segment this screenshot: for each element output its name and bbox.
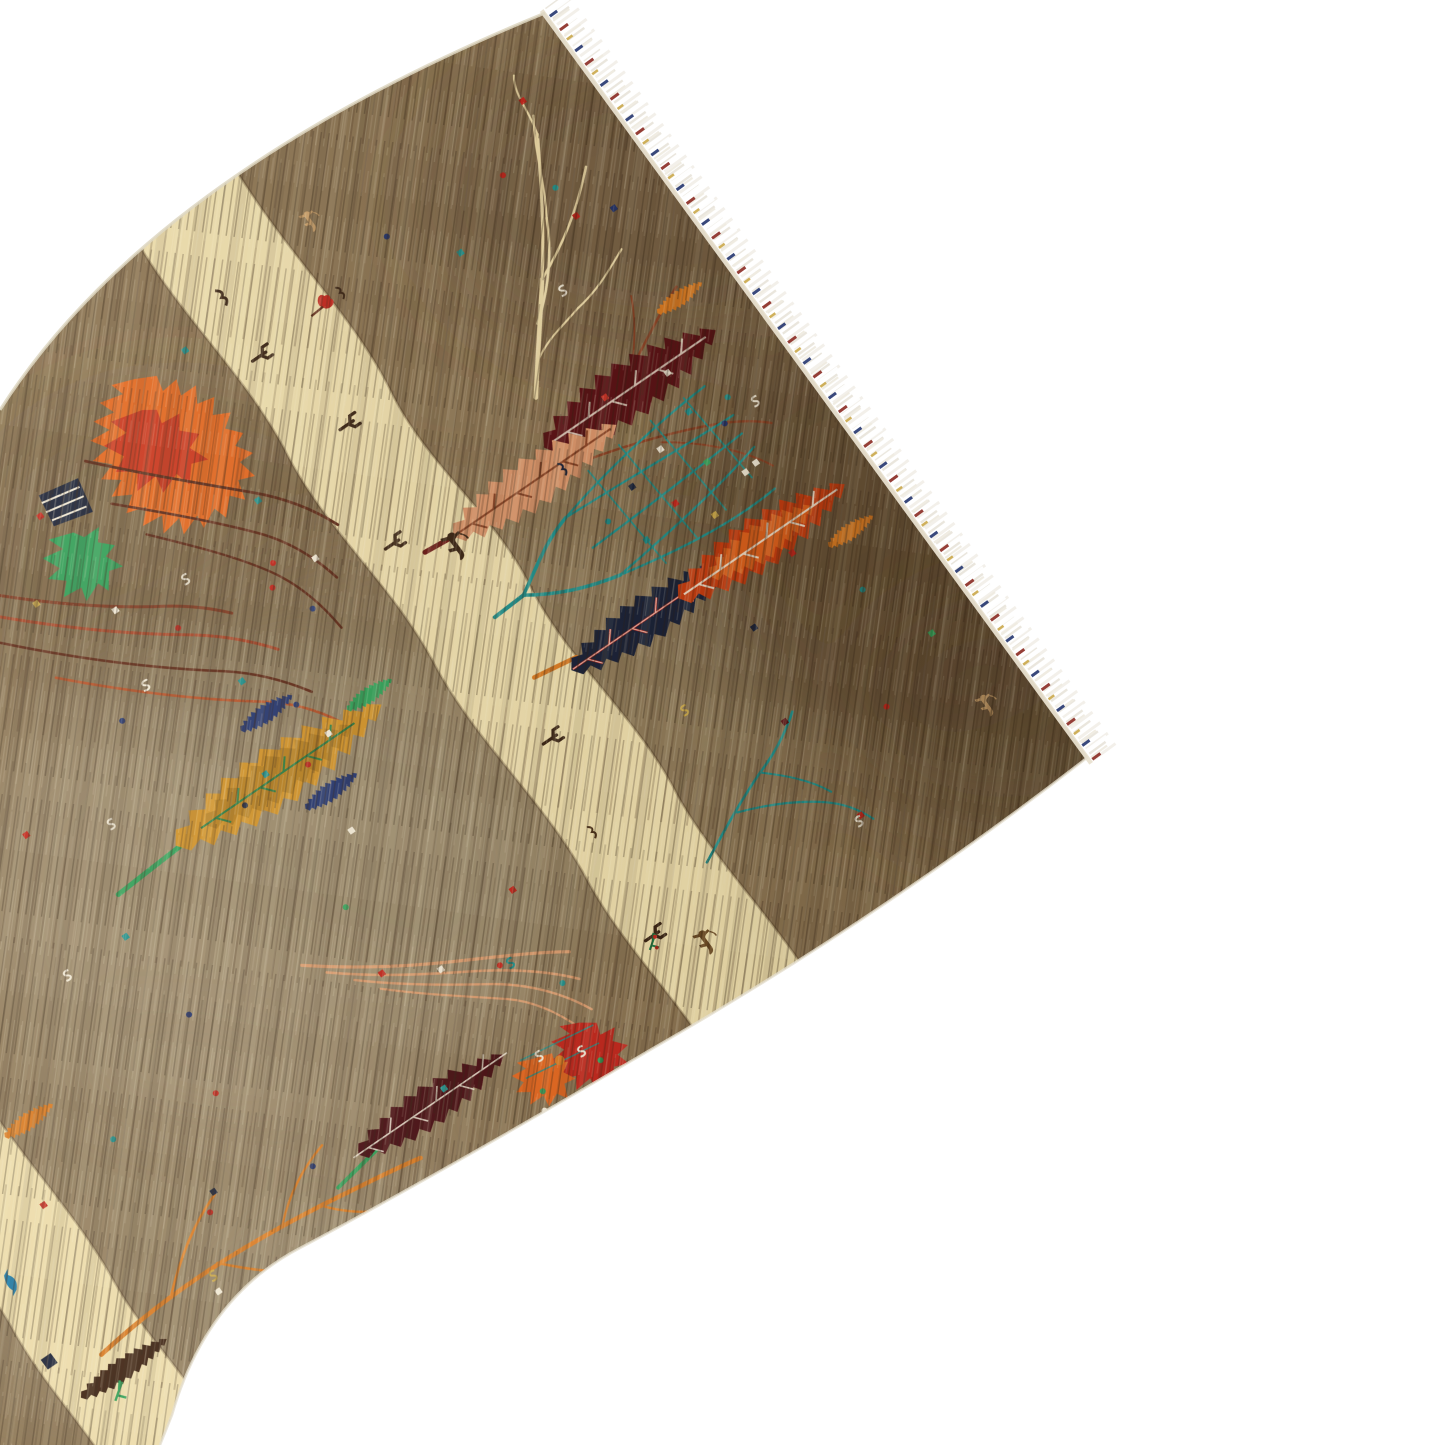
rug-photo [0, 0, 1445, 1445]
photo-canvas [0, 0, 1445, 1445]
